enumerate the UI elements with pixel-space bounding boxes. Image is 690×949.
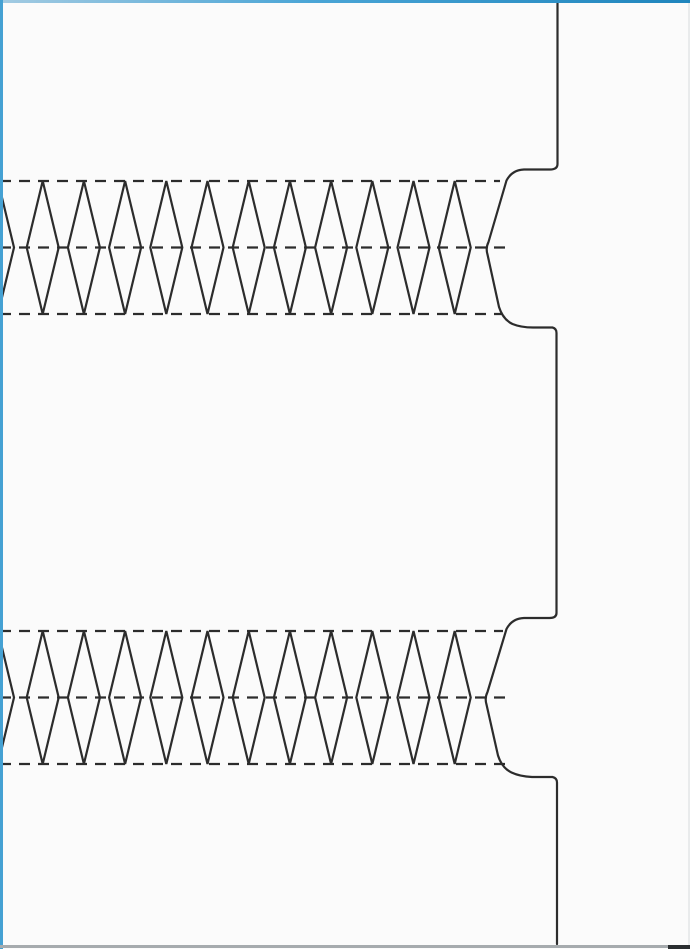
fold-band-2 bbox=[0, 631, 510, 764]
paper-cut-edge bbox=[486, 3, 558, 944]
scan-edge-top bbox=[0, 0, 690, 3]
pattern-svg bbox=[0, 0, 690, 949]
scan-edge-bottom bbox=[0, 945, 690, 948]
scan-edge-left bbox=[0, 0, 3, 949]
fold-band-1 bbox=[0, 181, 512, 314]
scan-edge-bottom-right bbox=[668, 945, 690, 949]
scanned-pattern-page bbox=[0, 0, 690, 949]
